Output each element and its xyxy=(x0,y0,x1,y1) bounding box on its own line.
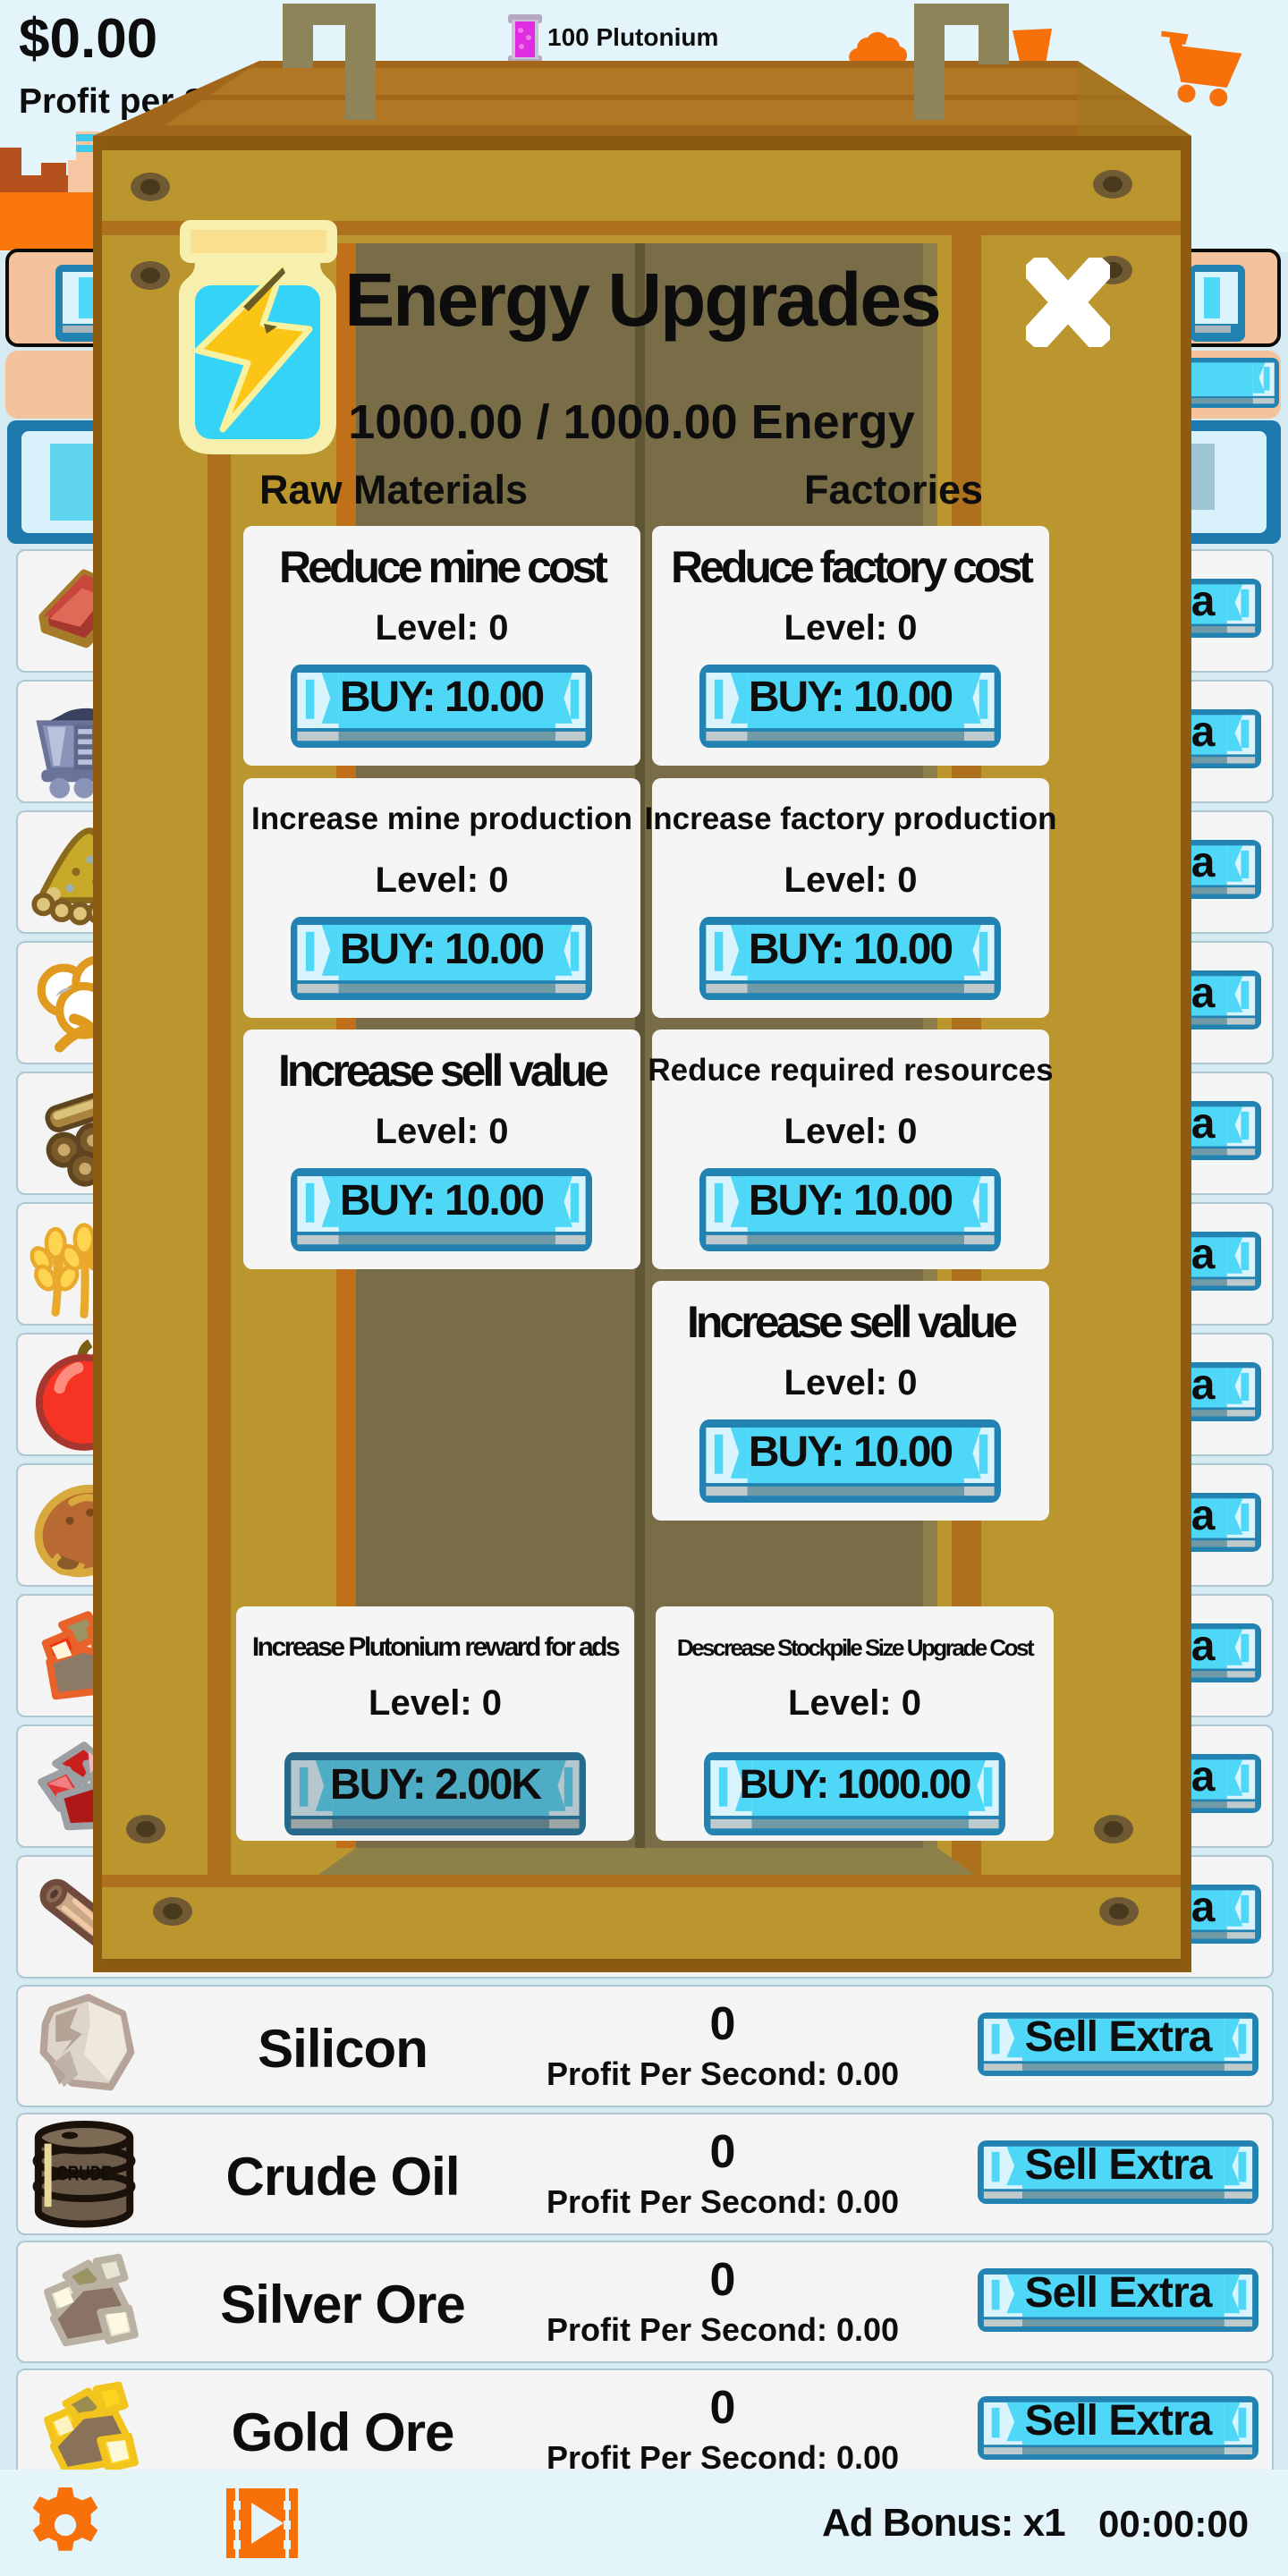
svg-text:CRUDE: CRUDE xyxy=(56,2162,111,2185)
